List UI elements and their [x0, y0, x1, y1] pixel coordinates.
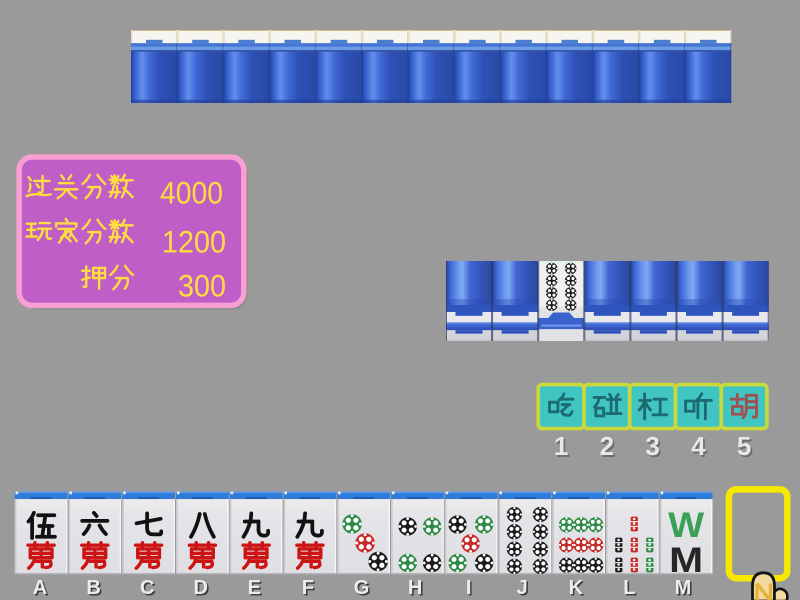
svg-text:1200: 1200	[162, 224, 226, 260]
svg-text:F: F	[302, 577, 314, 599]
svg-text:C: C	[140, 577, 154, 599]
svg-text:L: L	[623, 577, 635, 599]
svg-text:E: E	[248, 577, 261, 599]
svg-text:300: 300	[178, 268, 226, 304]
svg-text:D: D	[193, 577, 207, 599]
svg-text:1: 1	[554, 431, 568, 461]
svg-text:B: B	[86, 577, 100, 599]
svg-text:H: H	[408, 577, 422, 599]
svg-text:W: W	[668, 506, 704, 545]
svg-text:M: M	[675, 577, 692, 599]
svg-text:K: K	[569, 577, 584, 599]
svg-text:M: M	[669, 541, 703, 580]
svg-text:I: I	[466, 577, 472, 599]
svg-text:J: J	[517, 577, 528, 599]
svg-text:4: 4	[691, 431, 706, 461]
svg-text:G: G	[354, 577, 370, 599]
svg-text:A: A	[33, 577, 47, 599]
svg-text:5: 5	[737, 431, 751, 461]
svg-text:4000: 4000	[160, 175, 223, 211]
svg-text:3: 3	[645, 431, 659, 461]
svg-text:2: 2	[600, 431, 614, 461]
